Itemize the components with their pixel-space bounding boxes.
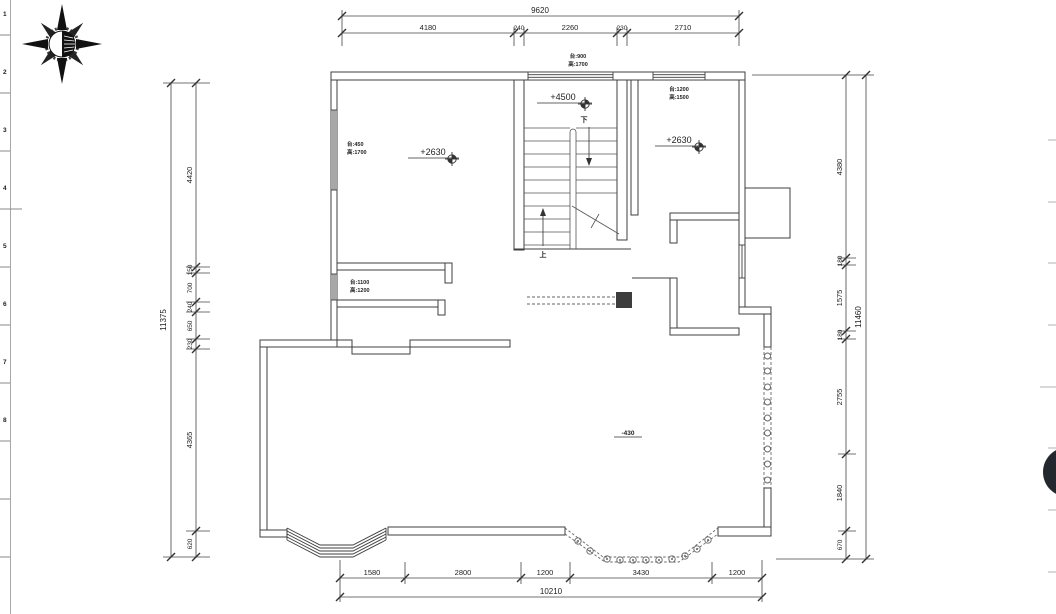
dim-label: 1580 [364,568,381,577]
dim-total-right: 11460 [854,306,863,328]
dim-label: 1575 [835,290,844,307]
dim-label: 3430 [633,568,650,577]
overhead-beam-dashed [527,297,616,304]
fab-button[interactable] [1043,447,1056,497]
floor-plan-canvas: 1 2 3 4 5 6 7 8 [0,0,1056,614]
right-edge-ticks [1040,140,1056,572]
dim-label: 1200 [537,568,554,577]
window-label: 高:1500 [669,93,689,101]
dim-label: 4365 [185,432,194,449]
staircase [524,127,619,249]
dim-label: 230 [617,25,628,32]
column [616,292,632,308]
ruler-mark: 2 [3,69,7,76]
ruler-mark: 7 [3,359,7,366]
level-stair-landing: +4500 [550,92,575,102]
level-terrace: -430 [621,430,634,437]
dim-label: 4180 [420,23,437,32]
dim-total-top: 9620 [531,6,549,15]
dim-label: 180 [837,255,844,266]
level-markers [408,97,706,437]
dim-label: 4420 [185,167,194,184]
ruler-mark: 5 [3,243,7,250]
window-label: 高:1700 [568,60,588,68]
bay-window-left [287,528,386,557]
compass-rose-icon [20,2,105,87]
right-railing-dashed [764,347,771,488]
stair-direction-arrows [540,127,592,246]
ruler-mark: 4 [3,185,7,192]
dim-chain-left [163,79,210,561]
dim-total-left: 11375 [159,309,168,331]
dim-total-bottom: 10210 [540,587,563,596]
window-label: 台:450 [347,140,364,148]
dim-label: 240 [514,25,525,32]
stair-treads-right [576,128,617,193]
dim-label: 150 [187,264,194,275]
window-label: 台:900 [570,52,587,60]
dim-label: 650 [187,320,194,331]
ruler-mark: 3 [3,127,7,134]
dim-label: 2755 [835,389,844,406]
dim-label: 4380 [835,159,844,176]
stair-up-label: 上 [540,250,547,259]
dim-label: 1200 [729,568,746,577]
stair-down-label: 下 [581,116,588,124]
window-label: 高:1700 [347,148,367,156]
dim-label: 2710 [675,23,692,32]
floor-plan-viewer: 1 2 3 4 5 6 7 8 [0,0,1056,614]
dim-label: 620 [187,538,194,549]
window-label: 台:1100 [350,278,369,286]
dim-label: 180 [837,329,844,340]
ruler-mark: 8 [3,417,7,424]
left-ruler: 1 2 3 4 5 6 7 8 [0,0,22,614]
stair-rail [570,129,576,249]
level-right-room: +2630 [666,135,691,145]
dim-label: 2260 [562,23,579,32]
ruler-mark: 1 [3,11,7,18]
dim-label: 670 [837,539,844,550]
dim-label: 230 [187,338,194,349]
ruler-mark: 6 [3,301,7,308]
stair-break-line [572,206,619,234]
dim-label: 240 [187,301,194,312]
dim-label: 1840 [835,485,844,502]
window-label: 高:1200 [350,286,370,294]
dim-label: 700 [187,282,194,293]
window-label: 台:1200 [669,85,689,93]
level-left-room: +2630 [420,147,445,157]
bay-railing-dashed [565,528,718,563]
stair-treads-left [524,128,570,245]
dim-label: 2800 [455,568,472,577]
